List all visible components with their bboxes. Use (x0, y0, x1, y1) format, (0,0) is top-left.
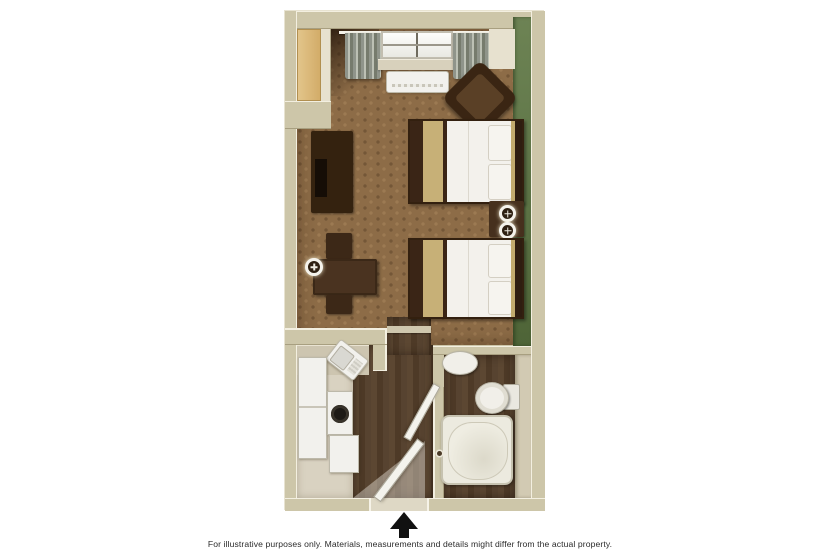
bed-2 (408, 238, 524, 319)
curtain-left (345, 33, 381, 79)
bed-2-runner (423, 240, 443, 317)
closet-lower-wall (285, 101, 331, 129)
ac-unit (386, 71, 449, 93)
dining-chair-top (326, 233, 352, 259)
nightstand-lamp-2 (499, 222, 516, 239)
closet-door (297, 29, 321, 101)
dining-chair-bottom (326, 295, 352, 314)
bed-2-headboard (515, 240, 522, 317)
kitchen-wall (285, 328, 387, 345)
stove (327, 391, 353, 435)
kitchen-wall-stub (373, 345, 387, 371)
entrance-arrow-stem (399, 528, 409, 538)
fridge-door-split (299, 406, 326, 408)
bathroom-door-handle (437, 451, 442, 456)
bed-1-pillow-bottom (488, 164, 512, 200)
armchair-cushion (455, 73, 506, 124)
entry-floor-extension (387, 317, 431, 355)
bed-2-footboard (410, 240, 423, 317)
refrigerator (298, 357, 327, 459)
bathtub-basin (448, 422, 508, 480)
floorplan-image: For illustrative purposes only. Material… (0, 0, 820, 560)
bed-1-headboard (515, 121, 522, 202)
bed-2-pillow-bottom (488, 281, 512, 315)
stove-burner (331, 405, 349, 423)
bed-1-footboard (410, 121, 423, 202)
bathtub (441, 415, 513, 485)
toilet-bowl (475, 382, 509, 414)
bed-1-runner (423, 121, 443, 202)
kitchen-cabinet (329, 435, 359, 473)
window-sash-line (383, 44, 451, 46)
window (381, 31, 453, 59)
floorplan-outline (284, 10, 544, 510)
top-wall (285, 11, 545, 29)
entrance-arrow-head (390, 512, 418, 529)
tv-cabinet (311, 131, 353, 213)
ac-vent (392, 84, 443, 87)
bathroom-wall-face (515, 355, 531, 498)
bed-2-pillow-top (488, 244, 512, 278)
upper-right-wall-face (489, 29, 515, 69)
nightstand-lamp-1 (499, 205, 516, 222)
wall-lamp (305, 258, 323, 276)
bathroom-sink (442, 351, 478, 375)
bed-1 (408, 119, 524, 204)
bed-1-pillow-top (488, 125, 512, 161)
bed-1-fold-line (443, 121, 447, 202)
bed-2-crease (468, 240, 469, 317)
left-wall (285, 11, 297, 511)
bed-2-fold-line (443, 240, 447, 317)
window-sill (378, 59, 454, 70)
caption: For illustrative purposes only. Material… (0, 539, 820, 549)
tv-screen (315, 159, 327, 197)
entry-threshold (387, 326, 431, 333)
bed-1-crease (468, 121, 469, 202)
right-wall (531, 11, 545, 511)
